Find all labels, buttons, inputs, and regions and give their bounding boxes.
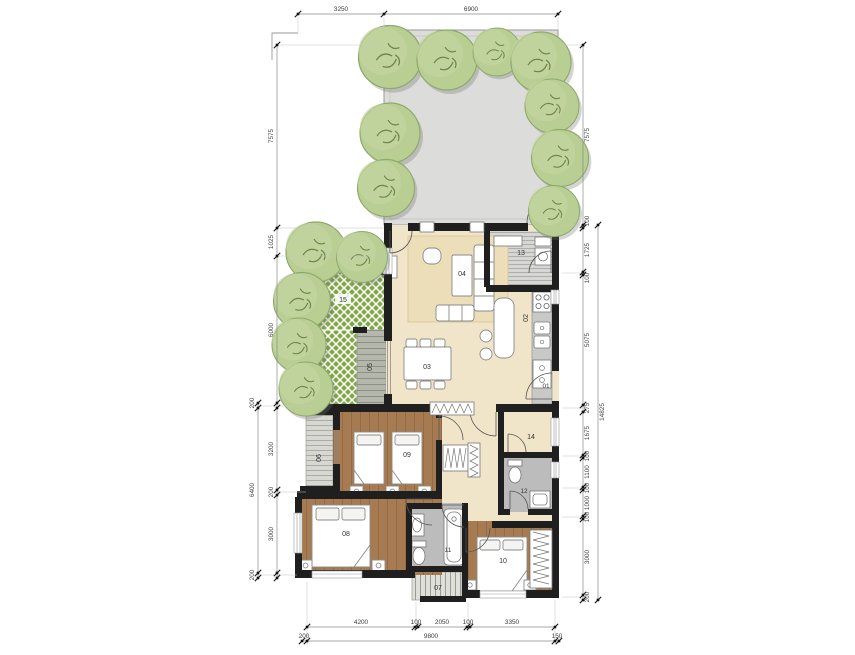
pillow	[316, 508, 339, 520]
room-label-11: 11	[445, 547, 452, 554]
chair	[434, 381, 445, 389]
room-label-06: 06	[316, 454, 323, 462]
dim-label: 6400	[249, 482, 256, 497]
dim-label: 100	[584, 482, 591, 493]
dim-label: 14825	[599, 403, 606, 421]
pillow	[357, 435, 381, 445]
dim-label: 100	[584, 450, 591, 461]
dim-label: 1725	[584, 242, 591, 257]
window	[480, 591, 526, 598]
washer	[535, 248, 551, 265]
room-label-04: 04	[458, 271, 466, 278]
pillow	[342, 508, 365, 520]
dim-label: 150	[552, 633, 563, 640]
window	[551, 462, 559, 478]
nightstand	[372, 560, 385, 571]
window	[312, 571, 362, 578]
room-label-02: 02	[523, 314, 530, 322]
toilet	[413, 548, 425, 565]
shoe-cabinet	[494, 236, 522, 246]
room-label-07: 07	[434, 585, 442, 592]
dim-label: 200	[268, 486, 275, 497]
chair	[406, 339, 417, 347]
pier	[470, 222, 484, 232]
chair	[434, 339, 445, 347]
armchair	[423, 248, 441, 264]
wardrobe	[530, 530, 552, 588]
dim-label: 200	[249, 569, 256, 580]
stool	[480, 348, 492, 360]
dim-label: 200	[249, 397, 256, 408]
dim-label: 100	[463, 619, 474, 626]
pier	[420, 222, 434, 232]
dim-label: 275	[584, 402, 591, 413]
room-label-09: 09	[403, 452, 411, 459]
room14-floor	[498, 408, 558, 456]
dim-label: 2050	[435, 619, 450, 626]
dim-label: 4200	[354, 619, 369, 626]
dim-label: 3250	[334, 6, 349, 13]
room-label-08: 08	[342, 531, 350, 538]
toilet-tank	[508, 460, 522, 466]
room-label-05: 05	[367, 363, 374, 371]
dim-label: 100	[584, 215, 591, 226]
sink-basin	[534, 322, 550, 334]
dim-label: 3000	[584, 549, 591, 564]
room-label-12: 12	[520, 488, 528, 495]
toilet-tank	[412, 541, 426, 547]
room-label-15: 15	[339, 297, 347, 304]
chair	[420, 339, 431, 347]
stove	[533, 292, 551, 312]
dim-label: 6000	[268, 322, 275, 337]
dim-label: 1100	[584, 465, 591, 479]
dim-label: 100	[584, 511, 591, 522]
pillow	[503, 540, 523, 550]
living-room-furniture	[390, 236, 508, 322]
room-label-01: 01	[542, 383, 550, 390]
window	[551, 418, 559, 446]
island	[494, 298, 514, 358]
room-label-13: 13	[517, 250, 525, 257]
dim-label: 100	[584, 272, 591, 283]
floor-plan-page: 01 02 03 04 05 06 07 08 09 10 11 12 13 1…	[0, 0, 855, 655]
dim-label: 7575	[268, 128, 275, 143]
dim-label: 1000	[584, 495, 591, 510]
dim-label: 1675	[584, 425, 591, 440]
dim-label: 1025	[268, 234, 275, 249]
dim-label: 3200	[268, 441, 275, 456]
wardrobe	[468, 443, 480, 477]
dim-label: 3000	[268, 526, 275, 541]
dim-label: 100	[411, 619, 422, 626]
window	[294, 513, 302, 553]
bedroom09-floor	[333, 410, 442, 498]
dim-label: 9800	[424, 633, 439, 640]
room-label-10: 10	[499, 558, 507, 565]
dim-label: 5075	[584, 332, 591, 347]
dim-label: 7575	[584, 127, 591, 142]
pillow	[395, 435, 419, 445]
dim-label: 200	[299, 633, 310, 640]
floor-plan-canvas: 01 02 03 04 05 06 07 08 09 10 11 12 13 1…	[0, 0, 855, 655]
window	[551, 290, 559, 304]
dim-label: 200	[584, 591, 591, 602]
room-label-03: 03	[423, 364, 431, 371]
dim-label: 6900	[464, 6, 479, 13]
chair	[420, 381, 431, 389]
room-label-14: 14	[527, 434, 535, 441]
chair	[406, 381, 417, 389]
sofa-2	[436, 305, 474, 321]
dim-label: 3350	[505, 619, 520, 626]
sink-basin	[534, 336, 550, 348]
toilet	[509, 467, 521, 483]
stool	[480, 330, 492, 342]
